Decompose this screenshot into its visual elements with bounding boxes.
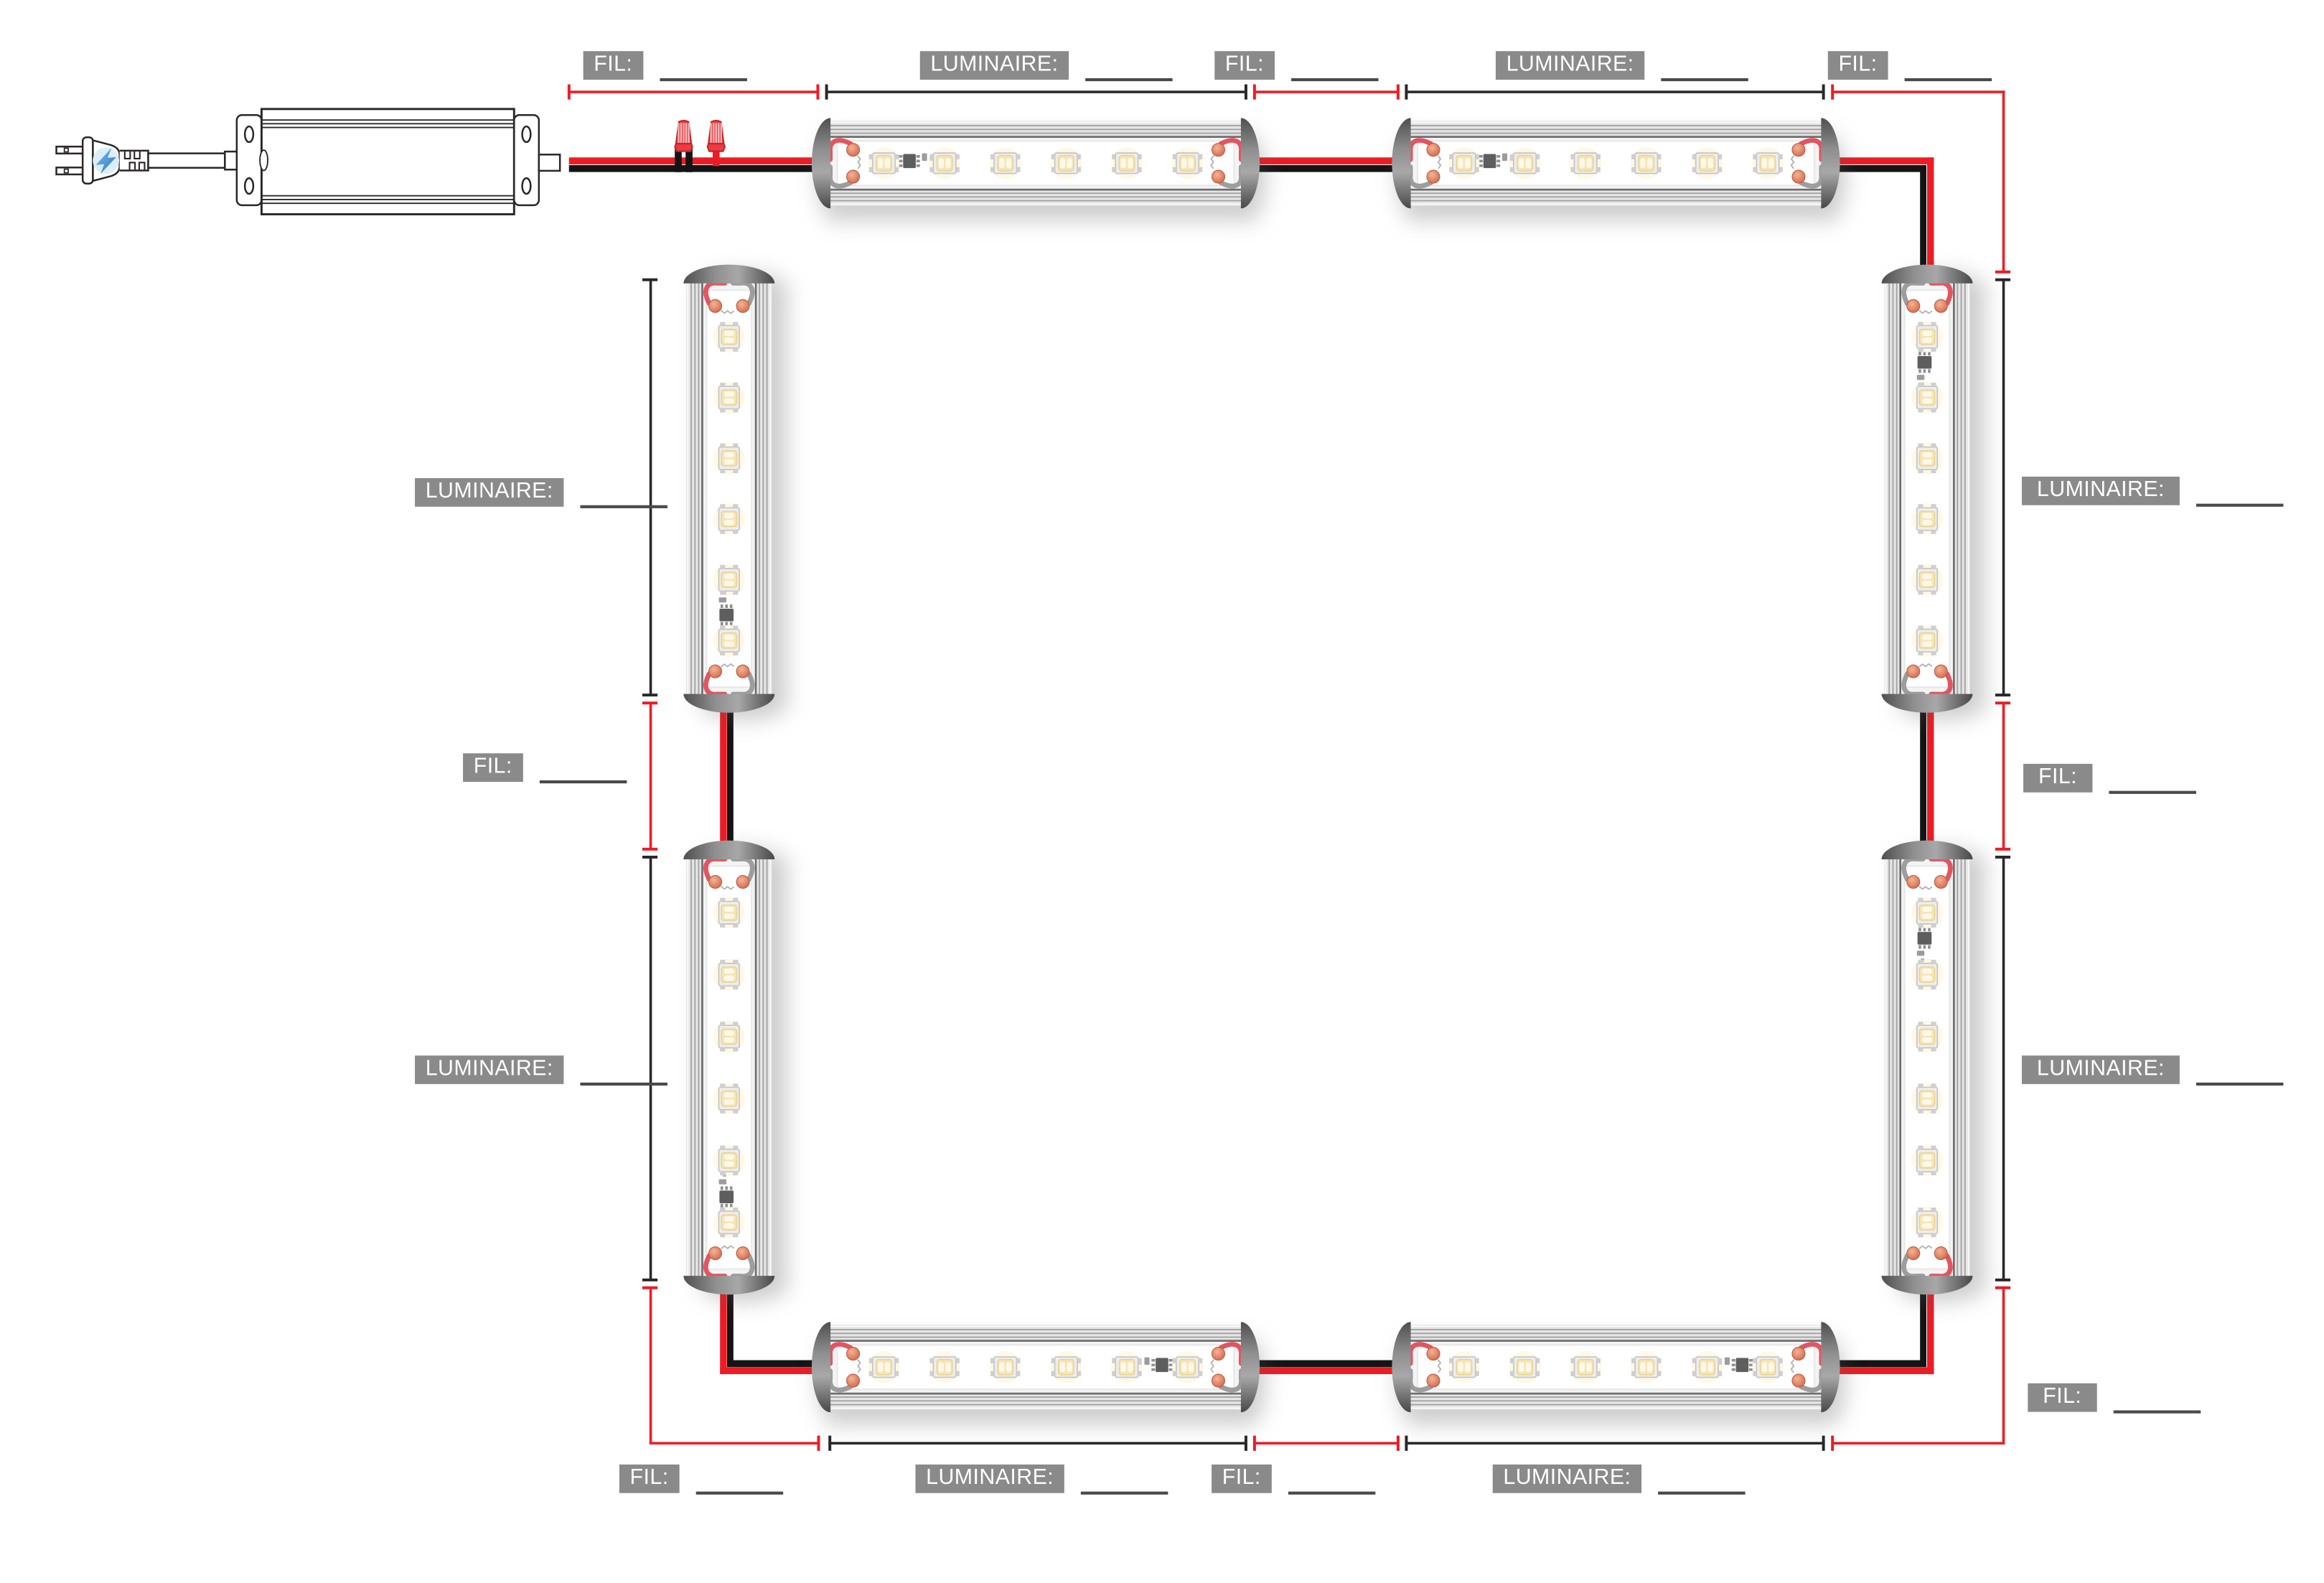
luminaire-tag: LUMINAIRE: [415,478,563,507]
wire-connector-icon [675,121,693,172]
wire-black [569,165,823,172]
luminaire-label-top-1: LUMINAIRE: [920,50,1173,79]
luminaire-bar-top-2 [1392,118,1840,208]
fil-label-bottom-mid: FIL: [1212,1464,1375,1493]
power-supply-unit [57,109,561,215]
luminaire-label-bottom-1: LUMINAIRE: [915,1464,1168,1493]
luminaire-label-bottom-2: LUMINAIRE: [1493,1464,1746,1493]
luminaire-value-blank [1085,57,1172,81]
driver-box [237,109,560,215]
fil-value-blank [1288,1470,1374,1494]
luminaire-value-blank [1658,1470,1745,1494]
fil-value-blank [2109,770,2196,794]
fil-label-right-bottom: FIL: [2028,1383,2200,1412]
mounting-hole [523,178,531,194]
luminaire-tag: LUMINAIRE: [2022,1055,2180,1084]
cable-grommet [260,150,268,170]
luminaire-bar-top-1 [812,118,1260,208]
fil-tag: FIL: [584,50,643,79]
luminaire-label-top-2: LUMINAIRE: [1496,50,1748,79]
luminaire-value-blank [1661,57,1748,81]
luminaire-tag: LUMINAIRE: [915,1464,1064,1493]
luminaire-bar-right-2 [1882,841,1973,1295]
luminaire-tag: LUMINAIRE: [1493,1464,1641,1493]
fil-label-top-mid: FIL: [1214,50,1378,79]
luminaire-value-blank [2196,482,2283,507]
mounting-hole [245,178,253,194]
fil-tag: FIL: [2028,1383,2096,1412]
dimension-lines [568,84,2010,1450]
mounting-hole [523,126,531,142]
luminaire-tag: LUMINAIRE: [920,50,1069,79]
luminaire-value-blank [580,484,667,508]
fil-label-bottom-left: FIL: [619,1464,783,1493]
luminaire-label-left-2: LUMINAIRE: [415,1055,667,1084]
fil-tag: FIL: [1212,1464,1271,1493]
luminaire-bar-left-1 [683,265,774,713]
fil-tag: FIL: [2023,764,2092,793]
power-plug-icon [57,137,149,184]
fil-value-blank [2113,1389,2200,1414]
fil-label-top-left: FIL: [584,50,747,79]
luminaire-tag: LUMINAIRE: [415,1055,563,1084]
luminaire-value-blank [2196,1062,2283,1086]
fil-tag: FIL: [1214,50,1274,79]
fil-value-blank [695,1470,782,1494]
diagram-canvas [0,0,2324,1583]
fil-label-right-mid: FIL: [2023,764,2196,793]
fil-value-blank [1291,57,1378,81]
luminaire-value-blank [580,1062,667,1086]
luminaire-tag: LUMINAIRE: [2022,477,2180,505]
fil-value-blank [539,760,626,784]
wire-red [569,157,823,164]
wiring [569,157,1934,1374]
fil-label-left-mid: FIL: [463,753,627,782]
fil-tag: FIL: [619,1464,679,1493]
driver-cable [149,151,251,169]
luminaire-bar-left-2 [683,841,774,1294]
luminaire-label-left-1: LUMINAIRE: [415,478,667,507]
fil-label-top-right: FIL: [1828,50,1992,79]
fil-value-blank [1904,57,1991,81]
output-terminal [539,154,560,171]
luminaire-bar-right-1 [1882,265,1973,713]
luminaire-label-right-2: LUMINAIRE: [2022,1055,2283,1084]
fil-value-blank [660,57,746,81]
luminaire-bar-bottom-right [1392,1322,1840,1412]
fil-tag: FIL: [463,753,523,782]
luminaire-value-blank [1081,1470,1168,1494]
wire-connectors [675,121,725,172]
fil-tag: FIL: [1828,50,1888,79]
mounting-hole [245,126,253,142]
luminaire-tag: LUMINAIRE: [1496,50,1644,79]
wiring-diagram: FIL: LUMINAIRE: FIL: LUMINAIRE: FIL: LUM… [0,0,2324,1583]
luminaire-label-right-1: LUMINAIRE: [2022,477,2283,505]
luminaire-bar-bottom-left [812,1322,1260,1412]
